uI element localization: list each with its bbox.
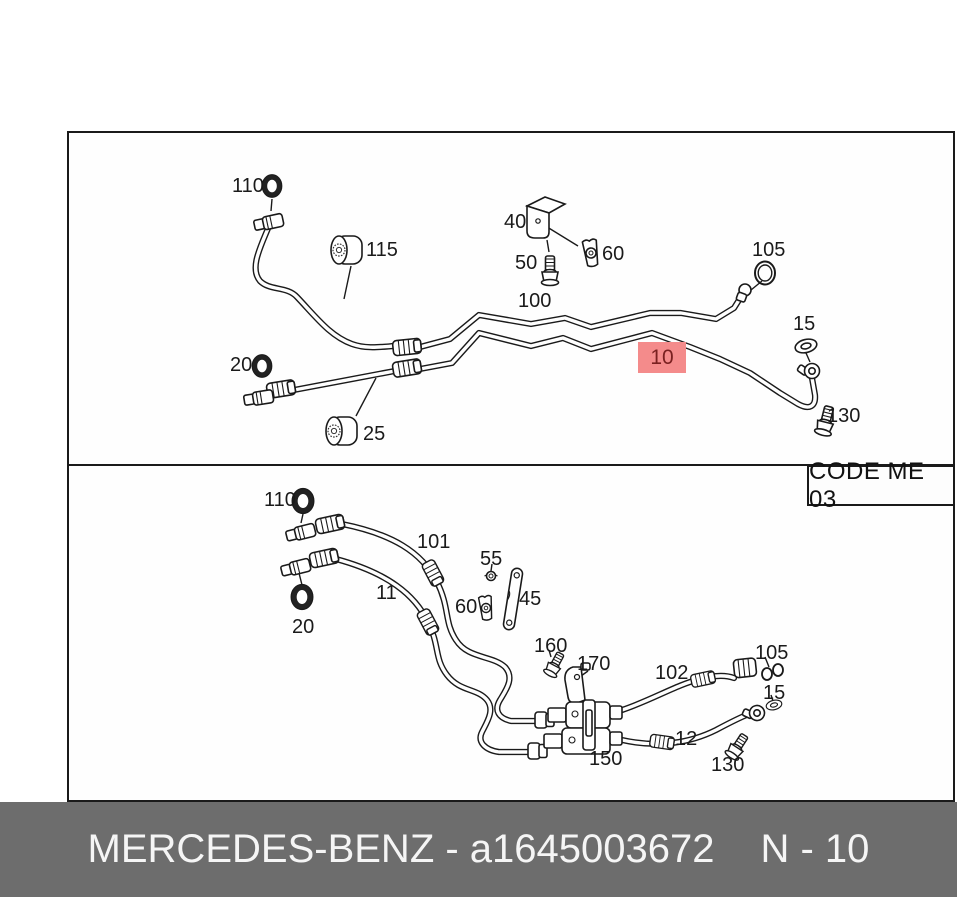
part-label-20: 20 [230,355,252,375]
part-label-105: 105 [752,240,785,260]
part-label-105-b: 105 [755,643,788,663]
part-label-25: 25 [363,424,385,444]
part-label-15: 15 [793,314,815,334]
part-label-110-b: 110 [264,490,296,510]
part-label-55: 55 [480,549,502,569]
part-label-115: 115 [366,240,398,260]
part-label-15-b: 15 [763,683,785,703]
part-label-50: 50 [515,253,537,273]
part-label-150: 150 [589,749,622,769]
part-label-40: 40 [504,212,526,232]
part-label-100: 100 [518,291,551,311]
part-label-60-b: 60 [455,597,477,617]
part-label-11: 11 [376,583,397,603]
footer-bar: MERCEDES-BENZ - a1645003672 N - 10 [0,802,957,897]
part-label-12: 12 [675,729,697,749]
part-label-110: 110 [232,176,264,196]
part-label-102: 102 [655,663,688,683]
code-box-text: CODE ME 03 [809,458,953,514]
part-label-160: 160 [534,636,567,656]
footer-brand-part-number: MERCEDES-BENZ - a1645003672 [88,827,715,872]
part-label-130-b: 130 [711,755,744,775]
part-label-20-b: 20 [292,617,314,637]
footer-note: N - 10 [761,827,870,872]
part-label-170: 170 [577,654,610,674]
part-highlight-10[interactable]: 10 [638,342,686,373]
part-label-101: 101 [417,532,450,552]
part-label-45: 45 [519,589,541,609]
part-label-60: 60 [602,244,624,264]
code-box: CODE ME 03 [807,465,955,506]
parts-catalog-page: CODE ME 03 110 115 40 50 60 100 105 15 2… [0,0,957,897]
part-label-130: 130 [827,406,860,426]
